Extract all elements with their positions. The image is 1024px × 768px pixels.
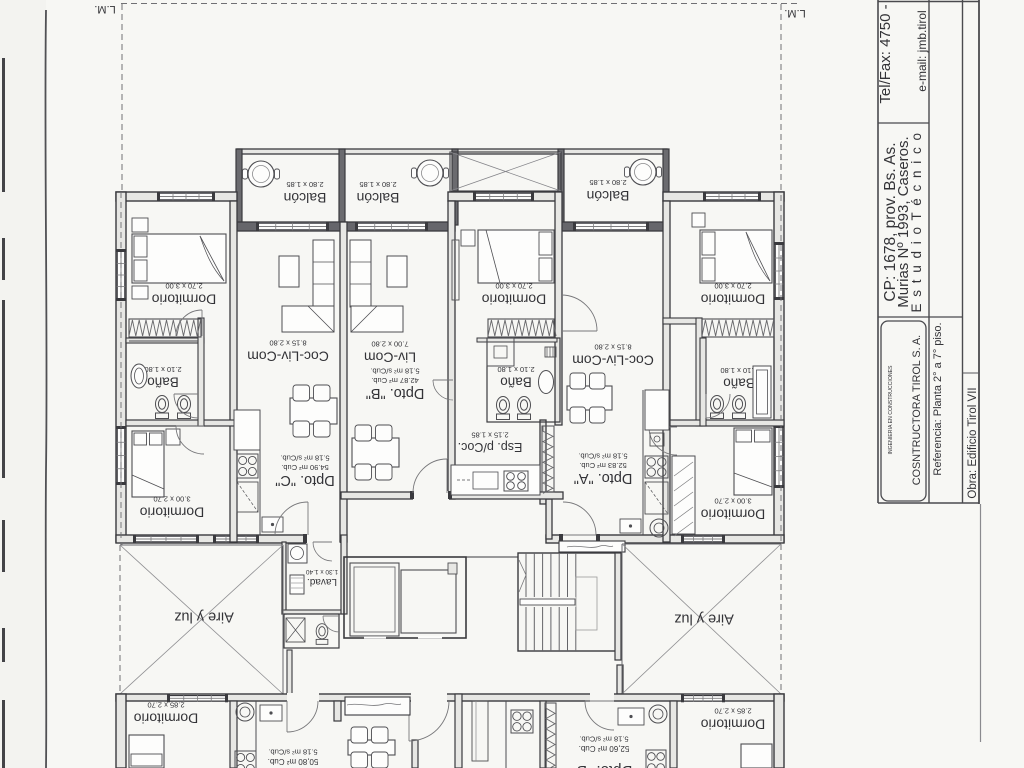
- svg-text:5.18 m² s/Cub.: 5.18 m² s/Cub.: [370, 367, 419, 376]
- svg-text:42.87 m² Cub.: 42.87 m² Cub.: [371, 376, 419, 385]
- svg-text:Dormitorio: Dormitorio: [701, 291, 766, 307]
- svg-text:Baño: Baño: [723, 375, 755, 390]
- svg-text:5.18 m² s/Cub.: 5.18 m² s/Cub.: [578, 452, 627, 461]
- svg-text:2.70 x 3.00: 2.70 x 3.00: [495, 282, 532, 291]
- svg-text:Dormitorio: Dormitorio: [140, 504, 205, 520]
- svg-text:Liv-Com: Liv-Com: [364, 349, 416, 365]
- svg-text:L.M.: L.M.: [784, 7, 805, 19]
- svg-text:2.10 x 1.80: 2.10 x 1.80: [144, 365, 181, 374]
- svg-text:Dormitorio: Dormitorio: [701, 506, 766, 522]
- svg-text:Balcón: Balcón: [357, 190, 400, 206]
- svg-text:2.15 x 1.85: 2.15 x 1.85: [471, 430, 508, 439]
- svg-text:Aire y luz: Aire y luz: [174, 608, 234, 624]
- svg-text:INGENIERIA EN CONSTRUCCIONES: INGENIERIA EN CONSTRUCCIONES: [888, 365, 894, 455]
- svg-text:8.15 x 2.80: 8.15 x 2.80: [269, 339, 306, 348]
- svg-text:2.10 x 1.80: 2.10 x 1.80: [720, 366, 757, 375]
- svg-text:L.M.: L.M.: [94, 3, 115, 15]
- svg-text:5.18 m² s/Cub.: 5.18 m² s/Cub.: [579, 735, 628, 744]
- svg-text:52.83 m² Cub.: 52.83 m² Cub.: [579, 461, 627, 470]
- svg-text:Baño: Baño: [147, 374, 179, 389]
- svg-text:8.15 x 2.80: 8.15 x 2.80: [594, 343, 631, 352]
- svg-text:2.85 x 2.70: 2.85 x 2.70: [147, 701, 184, 710]
- svg-text:Dpto. "A": Dpto. "A": [574, 470, 633, 486]
- svg-text:2.70 x 3.00: 2.70 x 3.00: [165, 282, 202, 291]
- svg-text:Dormitorio: Dormitorio: [152, 291, 217, 307]
- svg-text:Dpto. "C": Dpto. "C": [275, 472, 334, 488]
- svg-text:5.18 m² s/Cub.: 5.18 m² s/Cub.: [268, 748, 317, 757]
- svg-text:Dpto. "B": Dpto. "B": [572, 762, 633, 768]
- svg-text:Coc-Liv-Com: Coc-Liv-Com: [247, 348, 329, 364]
- svg-text:Dormitorio: Dormitorio: [482, 291, 547, 307]
- svg-text:Aire y luz: Aire y luz: [674, 610, 734, 626]
- svg-text:7.00 x 2.80: 7.00 x 2.80: [371, 340, 408, 349]
- svg-text:Dpto. "B": Dpto. "B": [366, 385, 425, 401]
- svg-text:Obra: Edificio Tirol VII: Obra: Edificio Tirol VII: [967, 387, 979, 498]
- svg-text:Referencia: Planta 2° a 7° pis: Referencia: Planta 2° a 7° piso.: [932, 322, 944, 475]
- svg-text:2.85 x 2.70: 2.85 x 2.70: [714, 707, 751, 716]
- svg-text:Dormitorio: Dormitorio: [134, 710, 199, 726]
- svg-text:2.80 x 1.85: 2.80 x 1.85: [359, 180, 396, 189]
- svg-text:52,60 m² Cub.: 52,60 m² Cub.: [579, 744, 630, 753]
- svg-text:50,80 m² Cub.: 50,80 m² Cub.: [268, 757, 319, 766]
- svg-text:Coc-Liv-Com: Coc-Liv-Com: [572, 352, 654, 368]
- svg-text:CP: 1678, prov. Bs. As.: CP: 1678, prov. Bs. As.: [882, 142, 899, 301]
- svg-text:3.00 x 2.70: 3.00 x 2.70: [153, 495, 190, 504]
- svg-text:Baño: Baño: [500, 374, 532, 389]
- svg-text:Tel/Fax: 4750 -: Tel/Fax: 4750 -: [877, 4, 894, 103]
- svg-text:COSNTRUCTORA TIROL S. A.: COSNTRUCTORA TIROL S. A.: [911, 335, 923, 485]
- svg-text:3.00 x 2.70: 3.00 x 2.70: [714, 497, 751, 506]
- svg-text:e-mail: jmb.tirol: e-mail: jmb.tirol: [915, 10, 929, 91]
- svg-text:2.10 x 1.80: 2.10 x 1.80: [497, 365, 534, 374]
- svg-text:Dormitorio: Dormitorio: [701, 716, 766, 732]
- svg-text:Balcón: Balcón: [284, 190, 327, 206]
- svg-text:5.18 m² s/Cub.: 5.18 m² s/Cub.: [280, 454, 329, 463]
- svg-text:2.70 x 3.00: 2.70 x 3.00: [714, 282, 751, 291]
- svg-text:Lavad.: Lavad.: [307, 576, 337, 587]
- svg-text:2.80 x 1.85: 2.80 x 1.85: [589, 178, 626, 187]
- svg-text:2.80 x 1.85: 2.80 x 1.85: [286, 180, 323, 189]
- svg-text:1.30 x 1.40: 1.30 x 1.40: [306, 568, 339, 575]
- svg-text:54.90 m² Cub.: 54.90 m² Cub.: [281, 463, 329, 472]
- svg-text:Esp. p/Coc.: Esp. p/Coc.: [458, 440, 523, 454]
- svg-text:Balcón: Balcón: [587, 188, 630, 204]
